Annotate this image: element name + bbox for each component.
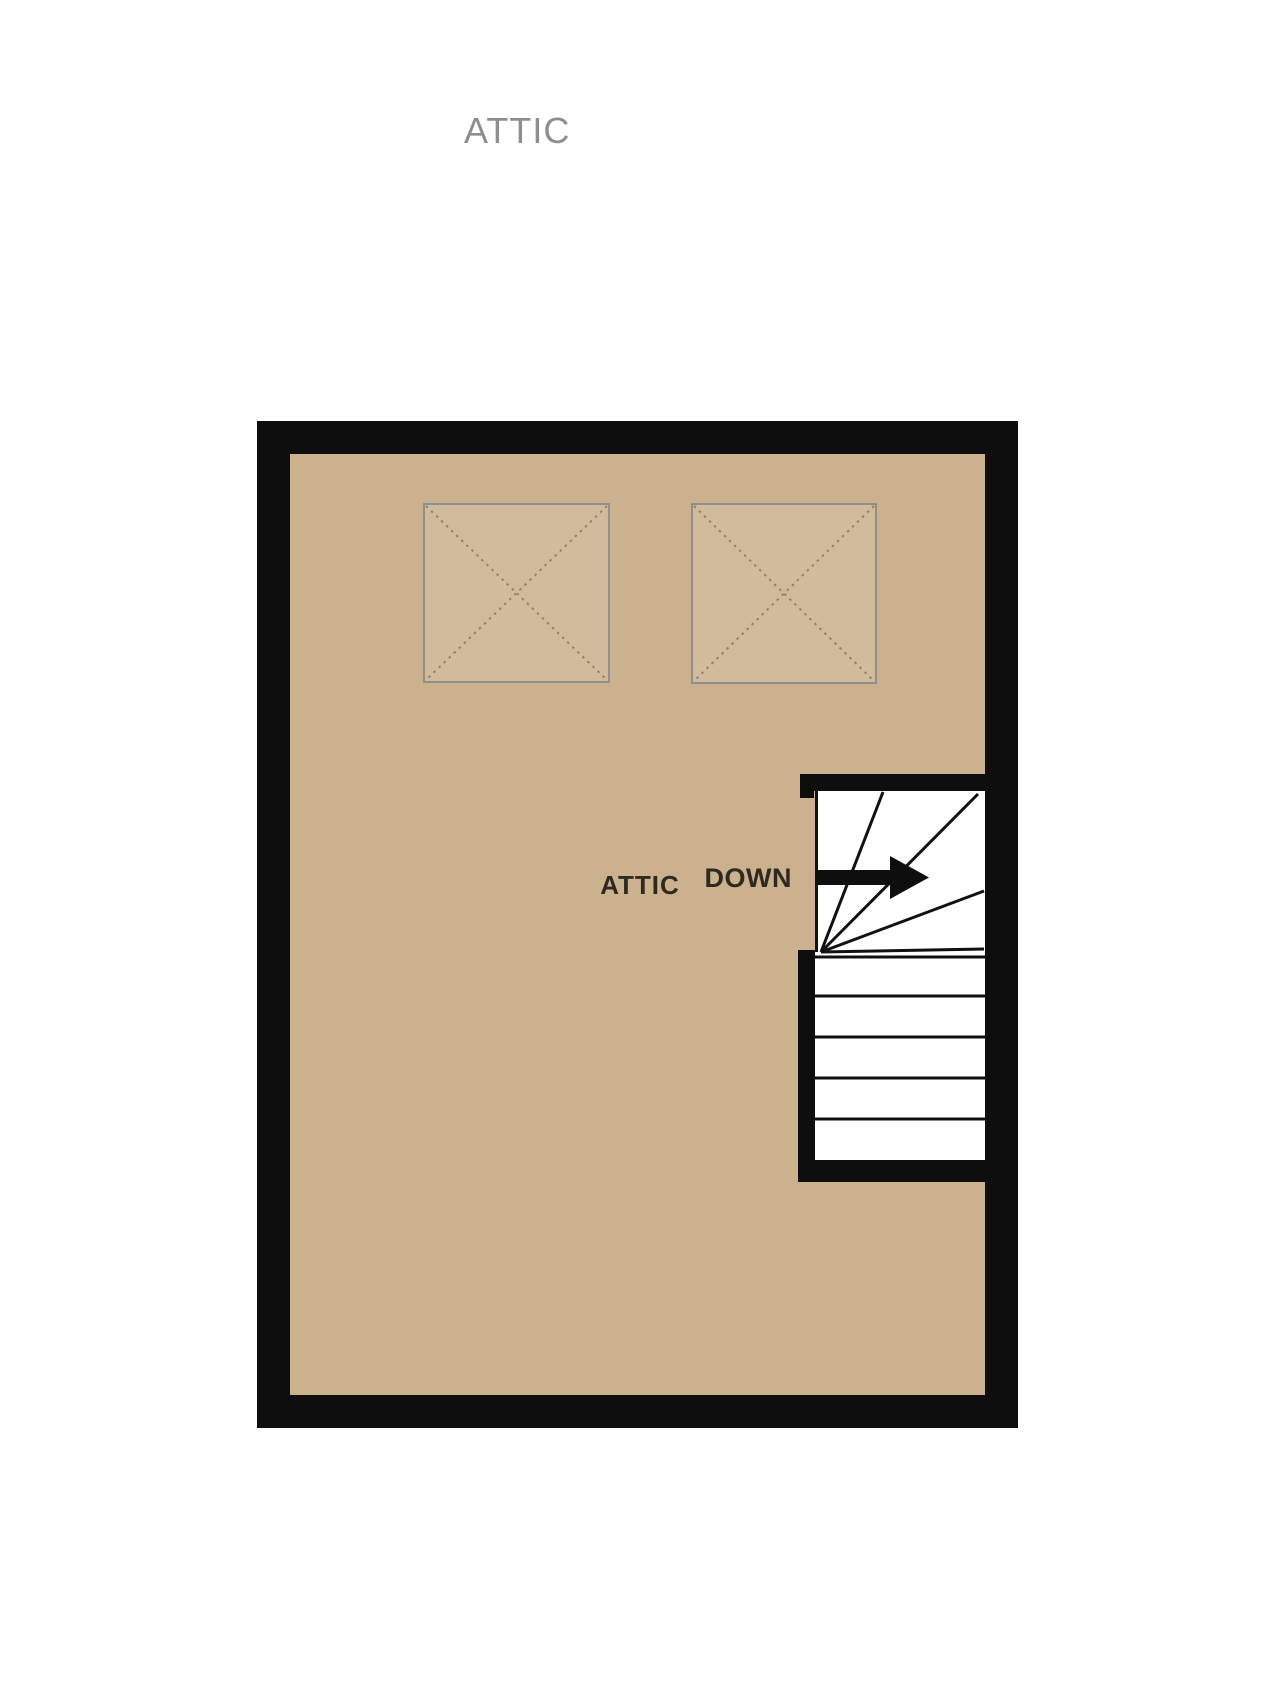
staircase [798, 774, 985, 1182]
skylight-x-icon [693, 505, 875, 682]
page-title: ATTIC [464, 110, 570, 152]
floor-plan: ATTIC DOWN [257, 421, 1018, 1428]
skylight-right [691, 503, 877, 684]
room-label: ATTIC [593, 871, 687, 899]
stair-well [815, 791, 985, 1160]
stair-direction-label: DOWN [680, 864, 792, 892]
skylight-left [423, 503, 610, 683]
skylight-x-icon [425, 505, 608, 681]
